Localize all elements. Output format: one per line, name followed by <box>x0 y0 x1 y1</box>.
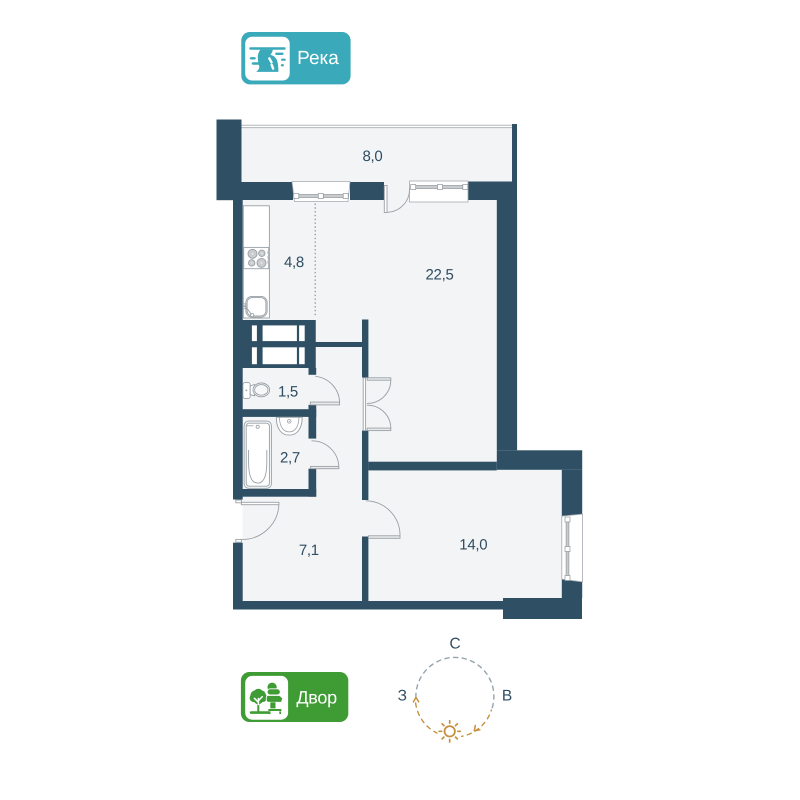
svg-text:С: С <box>449 636 460 653</box>
svg-text:4,8: 4,8 <box>284 254 304 271</box>
svg-text:22,5: 22,5 <box>426 267 454 284</box>
svg-text:1,5: 1,5 <box>278 383 298 400</box>
svg-text:З: З <box>398 688 407 705</box>
svg-text:Река: Река <box>297 48 339 69</box>
svg-text:8,0: 8,0 <box>363 148 383 165</box>
svg-text:Двор: Двор <box>296 687 337 707</box>
svg-text:В: В <box>502 688 512 705</box>
svg-text:2,7: 2,7 <box>280 450 300 467</box>
svg-text:7,1: 7,1 <box>299 542 319 559</box>
svg-text:14,0: 14,0 <box>459 537 487 554</box>
